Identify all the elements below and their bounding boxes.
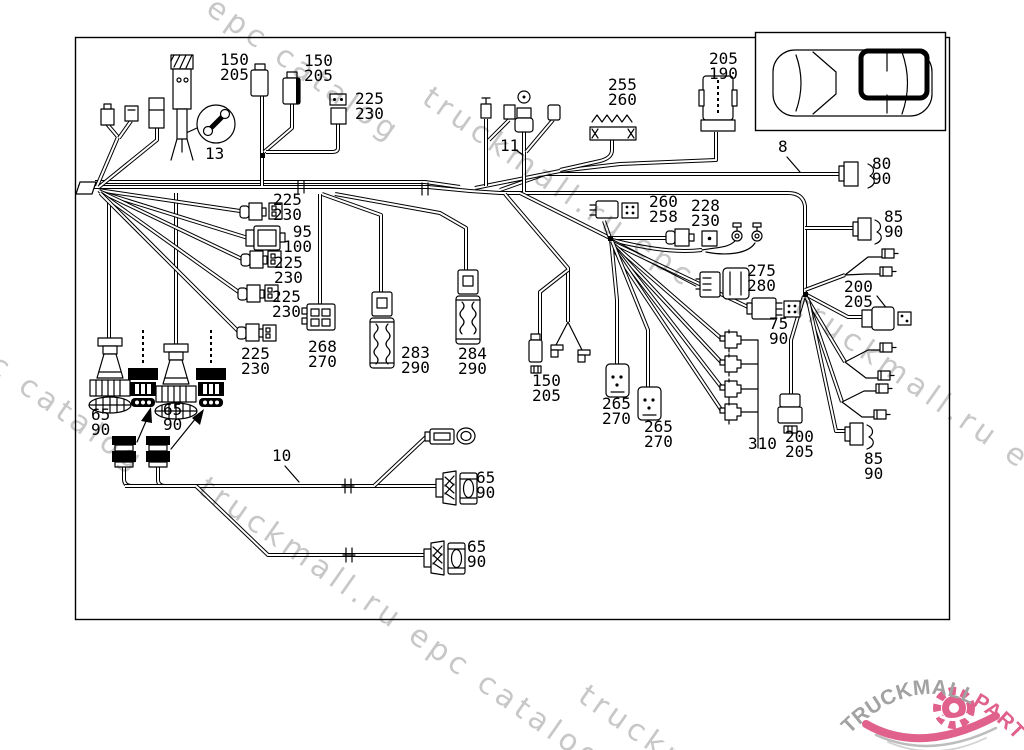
car-location-inset: [756, 33, 946, 131]
page: epc catalogtruckmall.ru epcepc catalogtr…: [0, 0, 1024, 750]
connector-283: [370, 292, 394, 368]
wrench-icon: [197, 105, 235, 143]
connector-284: [456, 270, 480, 344]
logo-swoosh: [866, 716, 996, 738]
wiring-diagram: [0, 0, 1024, 750]
truckmall-logo: TRUCKMALLPARTS: [836, 644, 1024, 750]
